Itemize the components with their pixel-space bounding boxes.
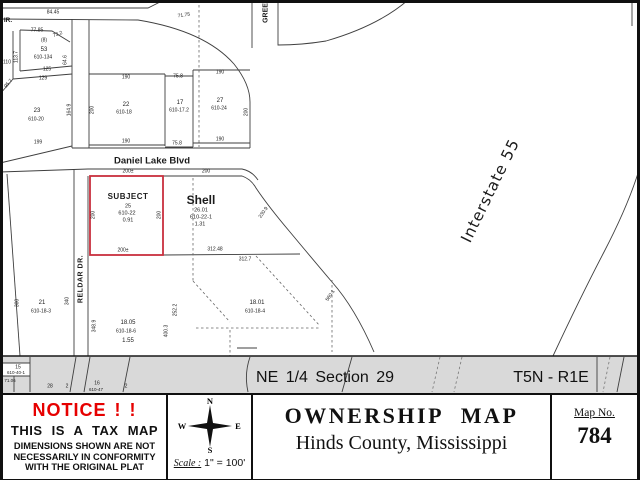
notice-disclaimer-line2: NECESSARILY IN CONFORMITY (3, 452, 166, 463)
band-parcel-box (1, 363, 30, 376)
map-number-label: Map No. (552, 407, 637, 419)
subject-parcel-outline (90, 176, 163, 255)
title-panel: OWNERSHIP MAP Hinds County, Mississippi (251, 395, 550, 479)
map-subtitle: Hinds County, Mississippi (253, 432, 550, 455)
band-background (0, 356, 640, 393)
scale-value: 1" = 100' (204, 457, 245, 469)
compass-west: W (178, 421, 187, 431)
compass-panel: N S W E Scale : 1" = 100' (166, 395, 251, 479)
notice-panel: NOTICE ! ! THIS IS A TAX MAP DIMENSIONS … (3, 395, 166, 479)
compass-north: N (207, 396, 214, 406)
compass-rose-icon: N S W E (168, 395, 253, 453)
notice-disclaimer-line3: WITH THE ORIGINAL PLAT (3, 462, 166, 473)
notice-disclaimer-line1: DIMENSIONS SHOWN ARE NOT (3, 441, 166, 452)
tax-map-page: SUBJECT 25 610-22 0.91 Shell 26.01 610-2… (0, 0, 640, 480)
compass-south: S (208, 445, 213, 453)
notice-heading: NOTICE ! ! (3, 400, 166, 421)
compass-east: E (235, 421, 241, 431)
map-number-panel: Map No. 784 (550, 395, 637, 479)
notice-tax-map-line: THIS IS A TAX MAP (3, 423, 166, 438)
scale-label: Scale : (174, 458, 202, 469)
title-block: NOTICE ! ! THIS IS A TAX MAP DIMENSIONS … (3, 393, 637, 479)
road-lines (0, 0, 639, 356)
map-title: OWNERSHIP MAP (253, 403, 550, 429)
scale-row: Scale : 1" = 100' (168, 457, 251, 469)
map-number-value: 784 (552, 423, 637, 449)
dashed-boundary-lines (193, 5, 332, 356)
